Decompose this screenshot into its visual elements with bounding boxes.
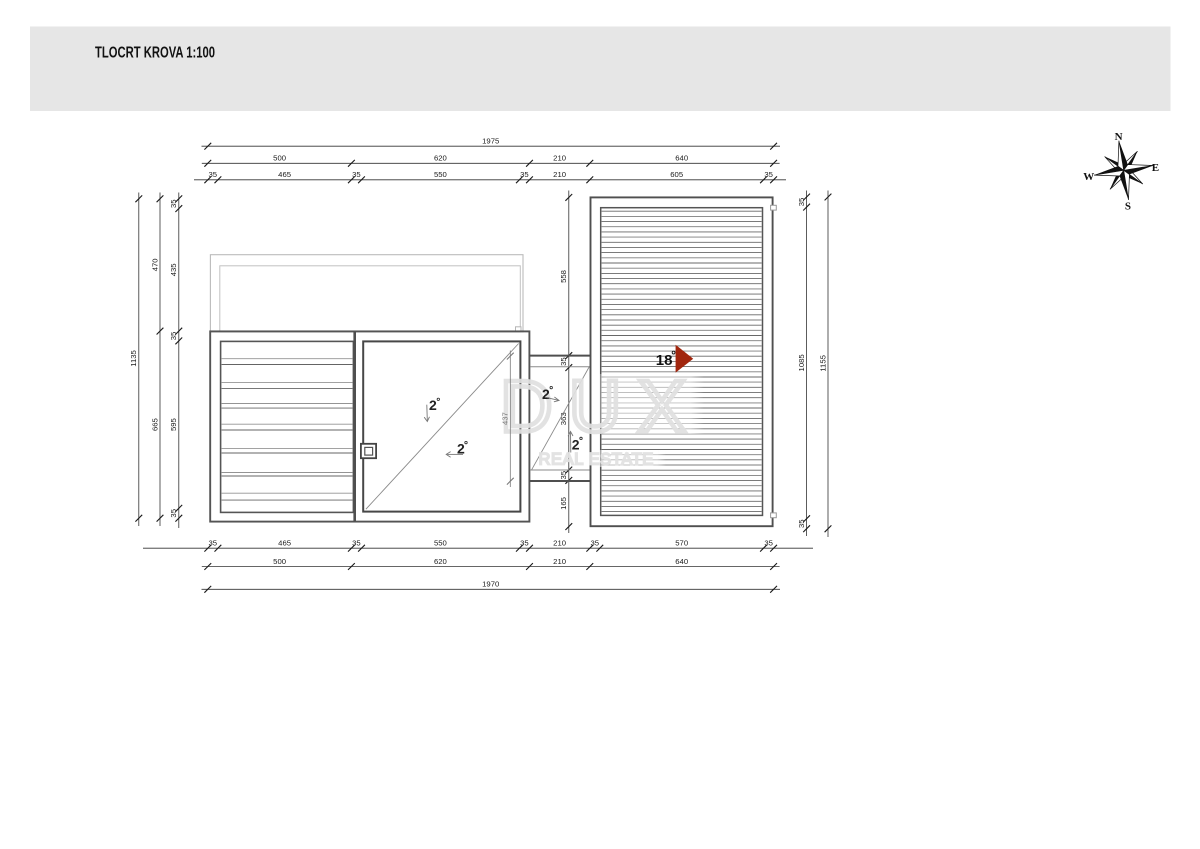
svg-text:1970: 1970 xyxy=(482,580,499,589)
svg-text:35: 35 xyxy=(169,509,178,518)
svg-text:435: 435 xyxy=(169,263,178,276)
svg-text:640: 640 xyxy=(675,154,688,163)
svg-text:35: 35 xyxy=(169,332,178,341)
svg-text:35: 35 xyxy=(591,539,600,548)
svg-text:2: 2 xyxy=(429,397,437,413)
svg-text:210: 210 xyxy=(553,170,566,179)
svg-text:550: 550 xyxy=(434,539,447,548)
svg-text:210: 210 xyxy=(553,154,566,163)
svg-text:437: 437 xyxy=(501,412,510,425)
svg-text:595: 595 xyxy=(169,418,178,431)
svg-text:1135: 1135 xyxy=(129,350,138,367)
svg-text:570: 570 xyxy=(675,539,688,548)
svg-text:558: 558 xyxy=(559,270,568,283)
svg-text:605: 605 xyxy=(670,170,683,179)
svg-text:35: 35 xyxy=(559,471,568,480)
svg-text:DUX: DUX xyxy=(500,367,702,448)
svg-text:35: 35 xyxy=(559,357,568,366)
svg-text:210: 210 xyxy=(553,557,566,566)
svg-text:REAL ESTATE: REAL ESTATE xyxy=(539,451,654,469)
svg-text:1155: 1155 xyxy=(818,355,827,372)
svg-text:35: 35 xyxy=(352,170,361,179)
svg-text:2: 2 xyxy=(542,386,550,402)
svg-text:665: 665 xyxy=(150,418,159,431)
svg-text:500: 500 xyxy=(273,154,286,163)
svg-text:35: 35 xyxy=(764,170,773,179)
svg-text:35: 35 xyxy=(209,539,218,548)
svg-text:165: 165 xyxy=(559,497,568,510)
svg-text:35: 35 xyxy=(520,539,529,548)
svg-text:620: 620 xyxy=(434,154,447,163)
svg-text:TLOCRT KROVA 1:100: TLOCRT KROVA 1:100 xyxy=(95,45,215,62)
svg-text:2: 2 xyxy=(572,437,580,453)
svg-text:35: 35 xyxy=(797,519,806,528)
svg-text:640: 640 xyxy=(675,557,688,566)
svg-text:35: 35 xyxy=(169,199,178,208)
svg-text:470: 470 xyxy=(150,258,159,271)
svg-text:210: 210 xyxy=(553,539,566,548)
svg-text:500: 500 xyxy=(273,557,286,566)
svg-text:N: N xyxy=(1115,131,1123,143)
svg-text:35: 35 xyxy=(764,539,773,548)
svg-text:S: S xyxy=(1125,201,1131,213)
svg-text:35: 35 xyxy=(520,170,529,179)
svg-text:465: 465 xyxy=(278,539,291,548)
svg-text:35: 35 xyxy=(797,198,806,207)
svg-text:35: 35 xyxy=(352,539,361,548)
svg-text:550: 550 xyxy=(434,170,447,179)
svg-text:1975: 1975 xyxy=(482,137,499,146)
svg-text:620: 620 xyxy=(434,557,447,566)
svg-text:465: 465 xyxy=(278,170,291,179)
svg-text:W: W xyxy=(1083,171,1094,183)
svg-text:35: 35 xyxy=(209,170,218,179)
svg-text:1085: 1085 xyxy=(797,354,806,371)
svg-text:E: E xyxy=(1152,162,1159,174)
